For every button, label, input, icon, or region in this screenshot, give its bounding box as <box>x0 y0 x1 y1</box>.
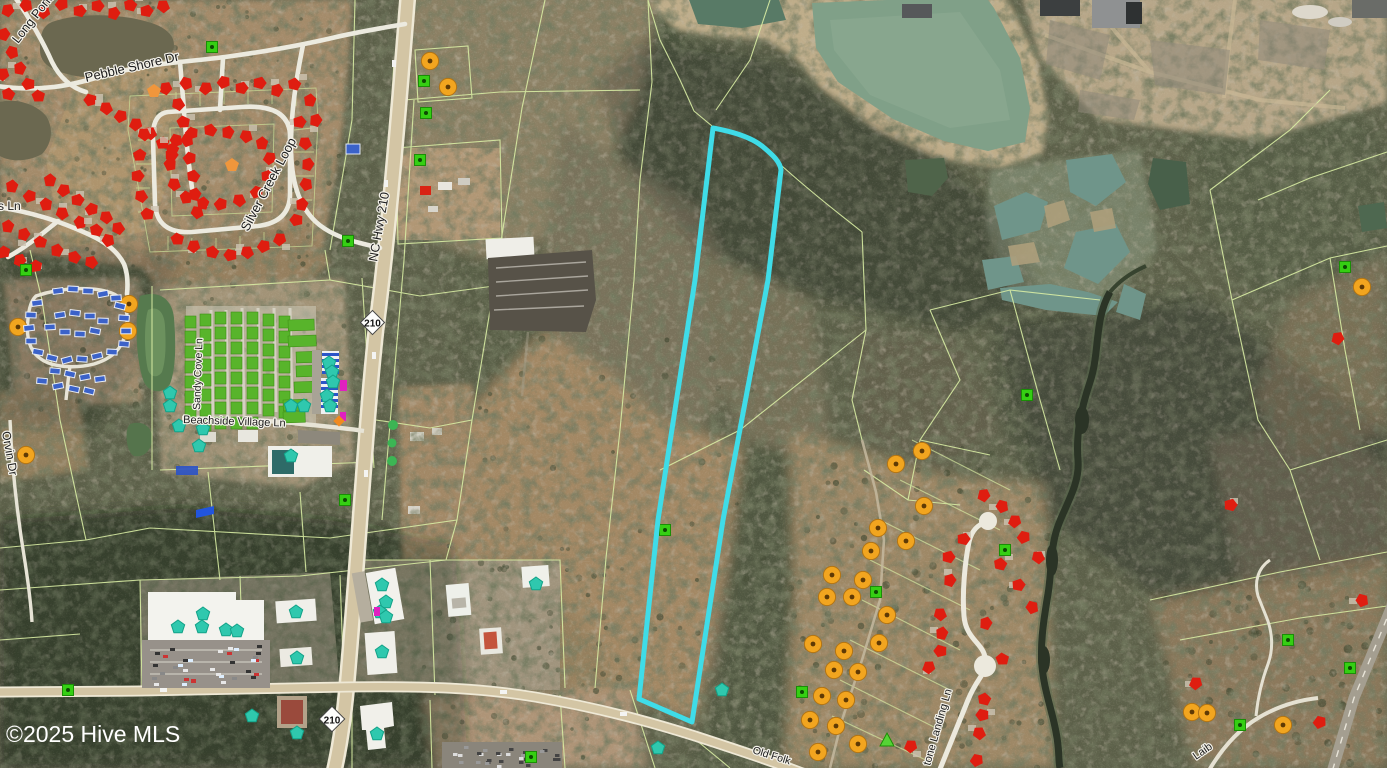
svg-text:©2025 Hive MLS: ©2025 Hive MLS <box>6 721 180 747</box>
svg-text:s Ln: s Ln <box>0 199 21 213</box>
svg-text:Sandy Cove Ln: Sandy Cove Ln <box>191 338 206 410</box>
svg-text:210: 210 <box>364 319 381 330</box>
svg-text:210: 210 <box>324 716 341 727</box>
